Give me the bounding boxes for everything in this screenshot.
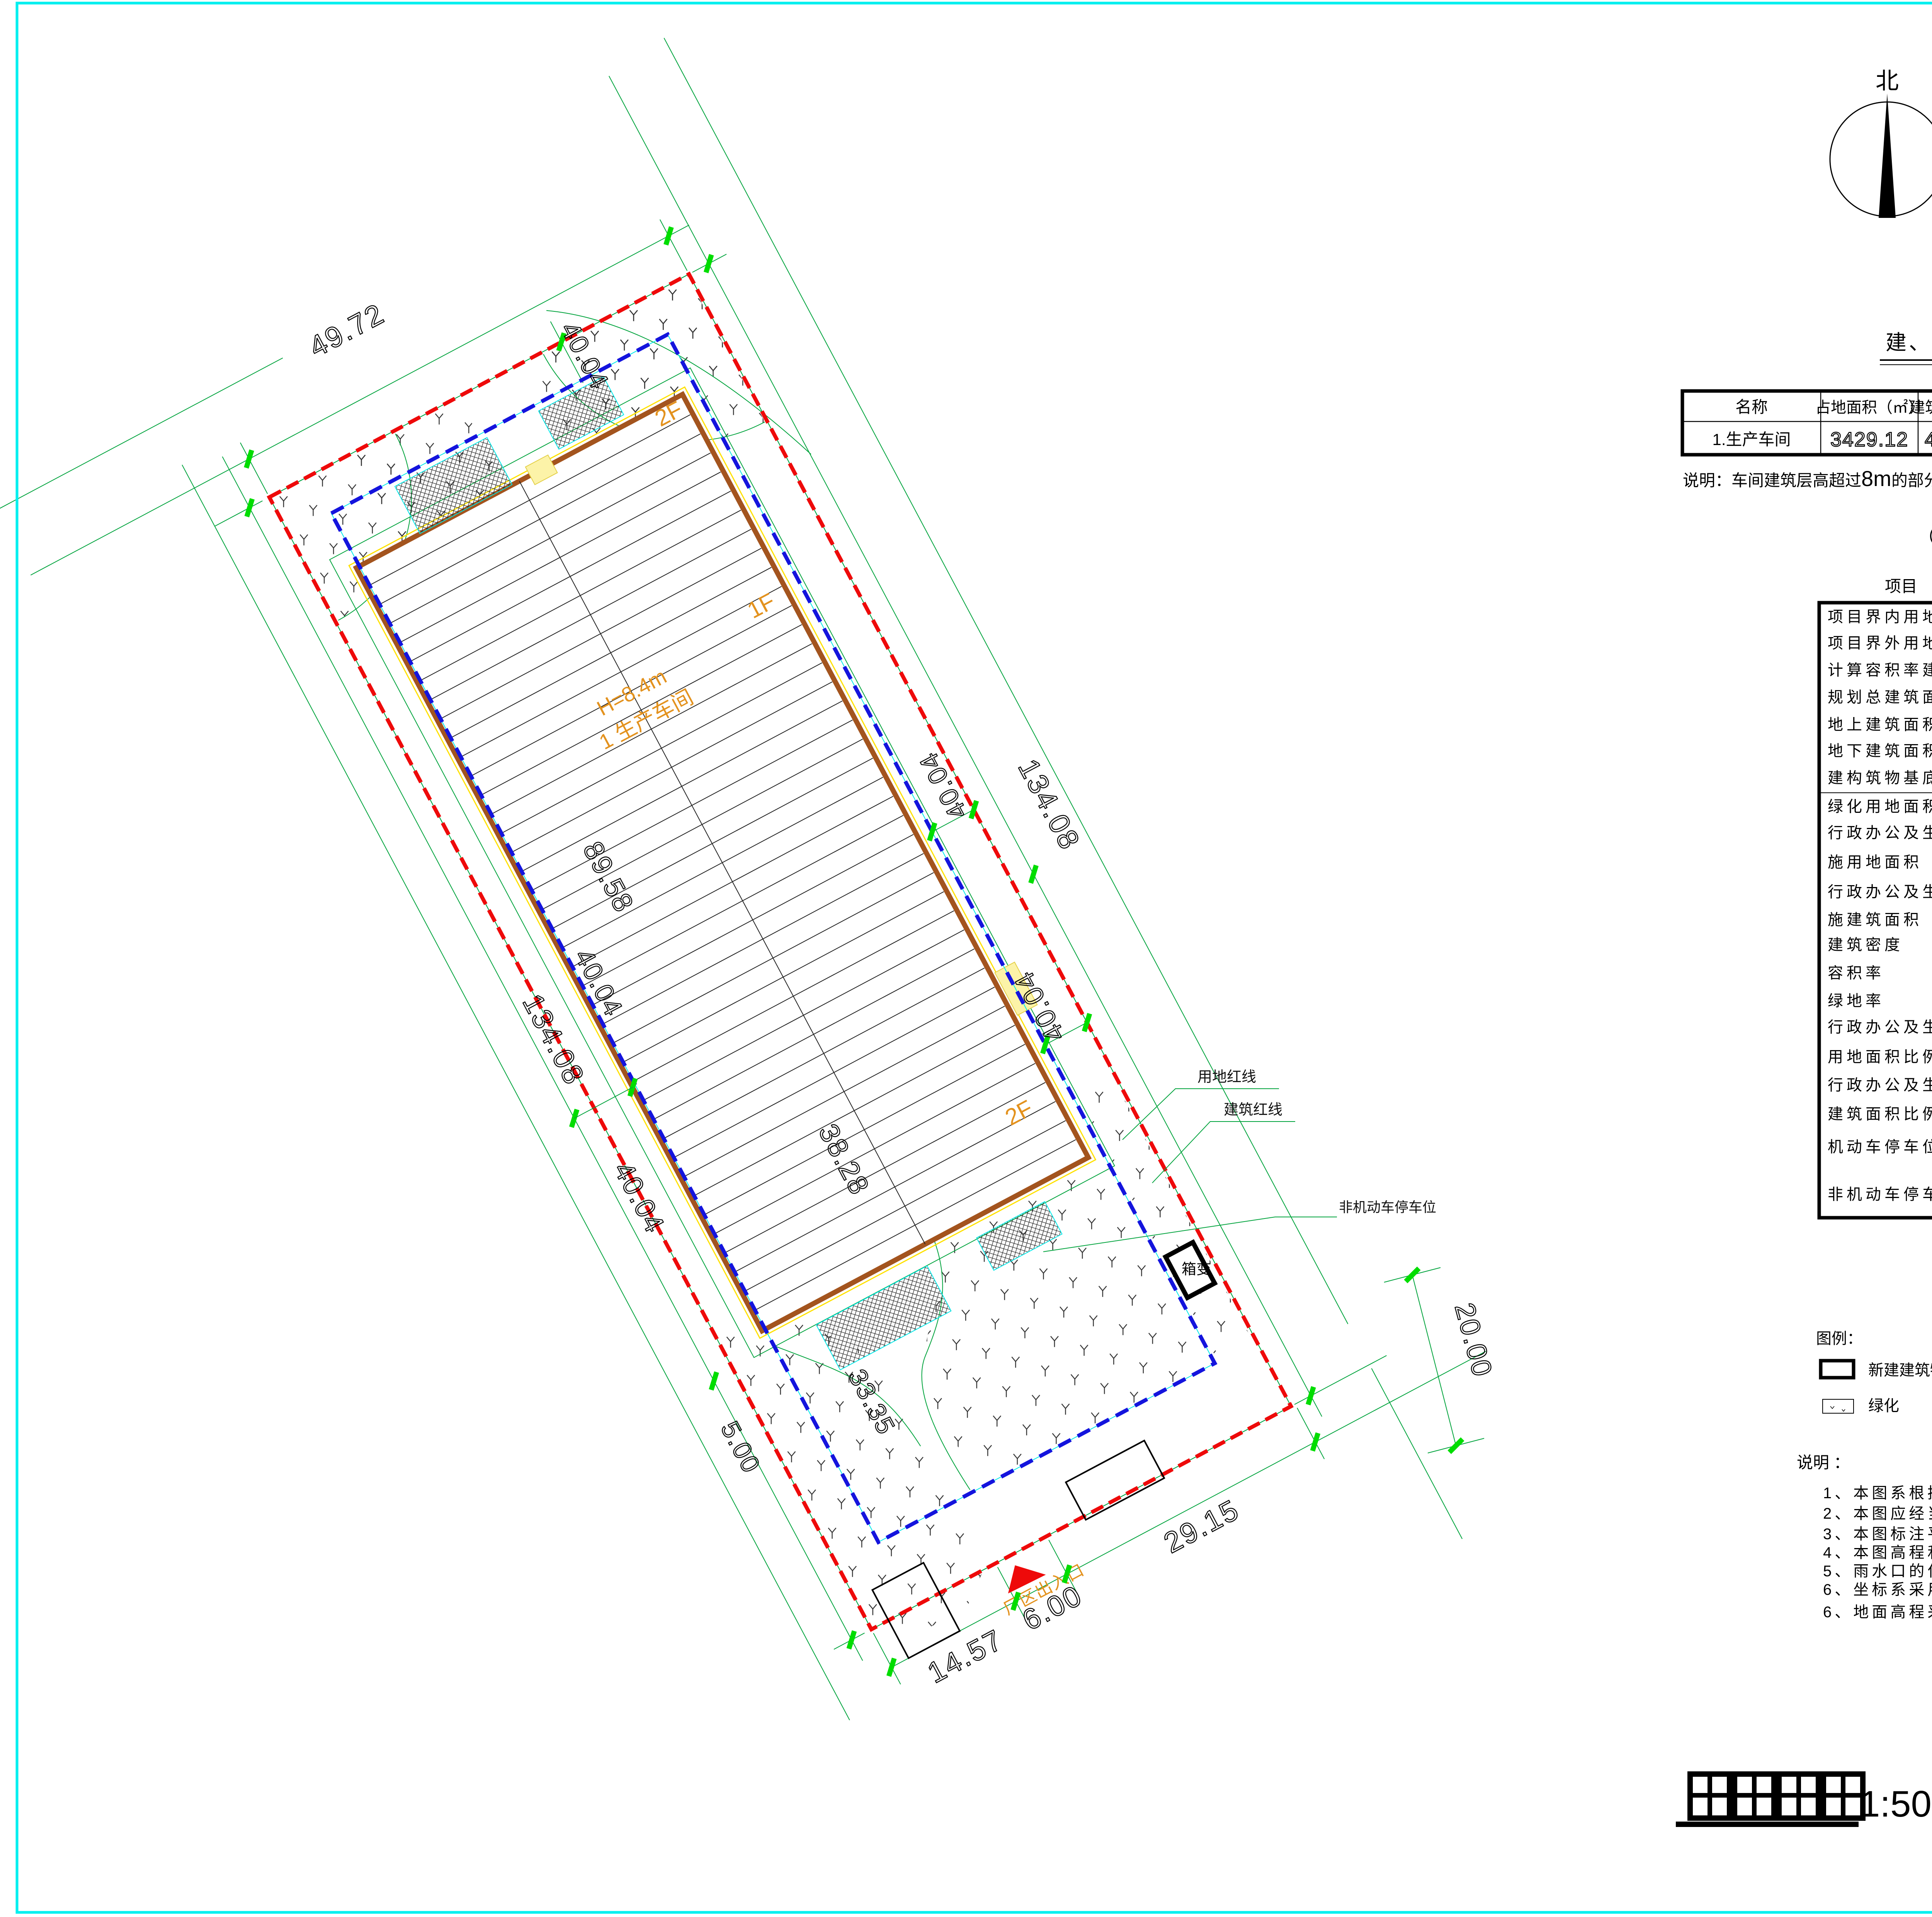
svg-text:绿地率: 绿地率 xyxy=(1828,992,1884,1009)
svg-text:地下建筑面积: 地下建筑面积 xyxy=(1828,743,1932,760)
svg-text:说明 ：: 说明 ： xyxy=(1797,1453,1850,1472)
svg-text:绿化: 绿化 xyxy=(1868,1397,1899,1414)
svg-text:施用地面积: 施用地面积 xyxy=(1828,854,1922,871)
svg-text:建、构筑物一览表: 建、构筑物一览表 xyxy=(1886,331,1932,354)
svg-text:箱变: 箱变 xyxy=(1182,1261,1211,1278)
svg-text:1、本图系根据建设单位提供的地形图绘制而成。: 1、本图系根据建设单位提供的地形图绘制而成。 xyxy=(1823,1485,1932,1502)
svg-text:建筑面积（㎡）: 建筑面积（㎡） xyxy=(1910,399,1932,416)
svg-text:建筑红线: 建筑红线 xyxy=(1224,1102,1282,1118)
svg-text:名称: 名称 xyxy=(1735,398,1768,416)
svg-text:占地面积（㎡）: 占地面积（㎡） xyxy=(1815,399,1923,416)
svg-text:2、本图应经当地规划部门及审批局核准后方可实施.: 2、本图应经当地规划部门及审批局核准后方可实施. xyxy=(1823,1505,1932,1522)
svg-text:4159.52: 4159.52 xyxy=(1925,428,1932,451)
svg-text:1.生产车间: 1.生产车间 xyxy=(1712,430,1791,449)
svg-text:项目界外用地面积: 项目界外用地面积 xyxy=(1828,635,1932,652)
svg-text:建构筑物基底总面积: 建构筑物基底总面积 xyxy=(1828,770,1932,787)
svg-text:6、地面高程采用大沽高程。: 6、地面高程采用大沽高程。 xyxy=(1823,1604,1932,1621)
svg-text:1:500: 1:500 xyxy=(1859,1783,1932,1825)
svg-text:项目: 项目 xyxy=(1885,577,1917,595)
svg-text:行政办公及生活附属设施: 行政办公及生活附属设施 xyxy=(1828,1077,1932,1094)
svg-text:6、坐标系采用1990年天津市任意直角坐标系。: 6、坐标系采用1990年天津市任意直角坐标系。 xyxy=(1823,1581,1932,1598)
svg-text:施建筑面积: 施建筑面积 xyxy=(1828,911,1922,928)
svg-text:用地红线: 用地红线 xyxy=(1197,1069,1256,1085)
svg-text:北: 北 xyxy=(1876,68,1899,94)
svg-text:行政办公及生活附属设施: 行政办公及生活附属设施 xyxy=(1828,1019,1932,1036)
svg-text:用地面积比例: 用地面积比例 xyxy=(1828,1049,1932,1066)
svg-text:新建建筑物: 新建建筑物 xyxy=(1868,1362,1932,1379)
svg-text:行政办公及生活附属设: 行政办公及生活附属设 xyxy=(1828,884,1932,901)
svg-text:非机动车停车位: 非机动车停车位 xyxy=(1339,1199,1436,1215)
svg-text:非机动车停车位: 非机动车停车位 xyxy=(1828,1186,1932,1203)
svg-text:4、本图高程和距离均以“m”计.: 4、本图高程和距离均以“m”计. xyxy=(1823,1544,1932,1561)
svg-text:建筑面积比例: 建筑面积比例 xyxy=(1828,1106,1932,1123)
svg-text:建筑密度: 建筑密度 xyxy=(1828,936,1903,953)
svg-text:规划总建筑面积: 规划总建筑面积 xyxy=(1828,689,1932,706)
svg-text:3429.12: 3429.12 xyxy=(1830,428,1908,451)
svg-text:绿化用地面积: 绿化用地面积 xyxy=(1828,798,1932,815)
svg-text:机动车停车位: 机动车停车位 xyxy=(1828,1139,1932,1156)
svg-text:计算容积率建筑面积: 计算容积率建筑面积 xyxy=(1828,662,1932,679)
svg-text:5、雨水口的位置详水专业图.: 5、雨水口的位置详水专业图. xyxy=(1823,1563,1932,1580)
svg-text:容积率: 容积率 xyxy=(1828,965,1884,982)
svg-text:行政办公及生活附属设: 行政办公及生活附属设 xyxy=(1828,824,1932,841)
svg-text:（工业项目）技术经济指标一览表: （工业项目）技术经济指标一览表 xyxy=(1918,527,1932,547)
svg-text:地上建筑面积: 地上建筑面积 xyxy=(1828,716,1932,733)
svg-text:图例：: 图例： xyxy=(1816,1330,1862,1347)
svg-text:3、本图标注平面尺寸为建筑物外墙尺寸.: 3、本图标注平面尺寸为建筑物外墙尺寸. xyxy=(1823,1526,1932,1543)
svg-text:项目界内用地面积: 项目界内用地面积 xyxy=(1828,608,1932,625)
